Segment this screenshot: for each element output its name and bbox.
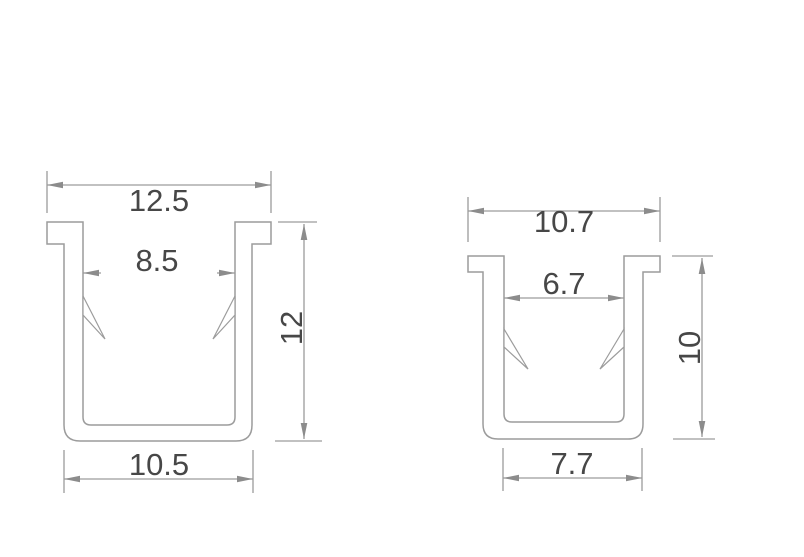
left-profile-barb-right	[213, 296, 235, 339]
left-dim-top-width: 12.5	[47, 171, 271, 218]
right-profile-barb-left	[504, 329, 528, 369]
dimension-label: 7.7	[550, 446, 593, 481]
right-profile: 10.7 6.7 7.7 10	[468, 197, 715, 491]
left-dim-height: 12	[274, 222, 322, 441]
right-profile-barb-right	[600, 329, 624, 369]
left-profile: 12.5 8.5 10.5 12	[47, 171, 322, 493]
right-dim-top-width: 10.7	[468, 197, 660, 242]
dimension-label: 6.7	[542, 266, 585, 301]
dimension-label: 10.7	[534, 204, 594, 239]
right-dim-bottom-width: 7.7	[503, 446, 642, 491]
dimension-label: 12	[274, 311, 309, 345]
dimension-label: 10	[672, 331, 707, 365]
technical-drawing-canvas: 12.5 8.5 10.5 12	[0, 0, 804, 557]
left-profile-barb-left	[83, 296, 105, 339]
left-dim-bottom-width: 10.5	[64, 447, 253, 493]
drawing-page: 12.5 8.5 10.5 12	[0, 0, 804, 557]
left-dim-inner-width: 8.5	[83, 243, 235, 278]
dimension-label: 12.5	[129, 183, 189, 218]
right-dim-inner-width: 6.7	[504, 266, 624, 301]
dimension-label: 10.5	[129, 447, 189, 482]
dimension-label: 8.5	[135, 243, 178, 278]
right-dim-height: 10	[672, 256, 715, 439]
